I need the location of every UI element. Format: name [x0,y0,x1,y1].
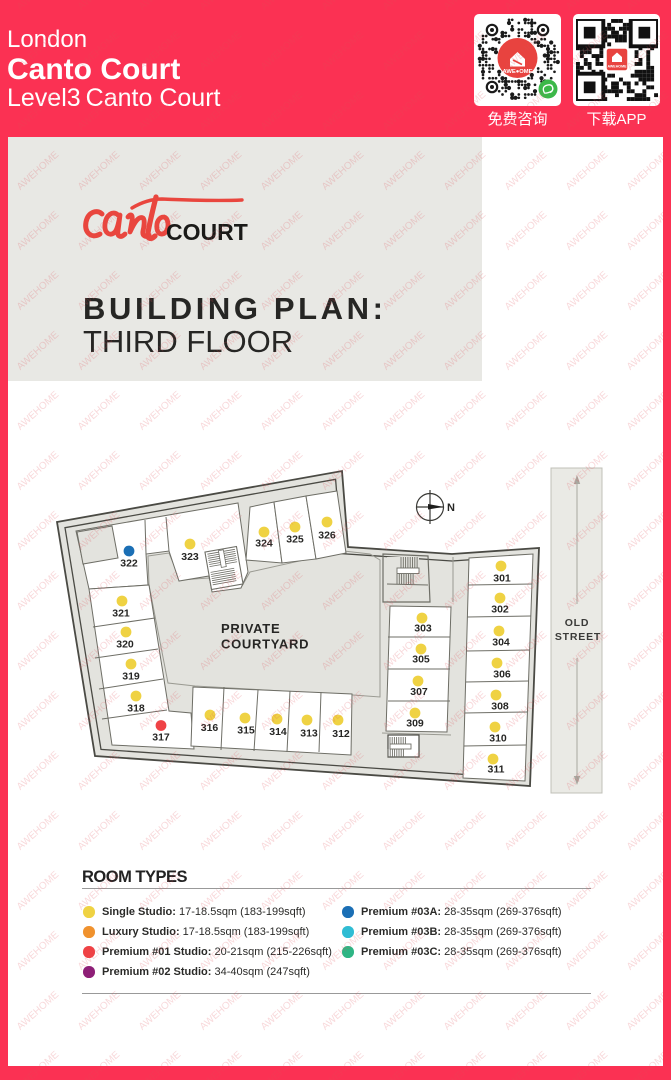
svg-text:318: 318 [127,703,145,715]
svg-text:301: 301 [493,573,511,585]
svg-text:306: 306 [493,669,511,681]
svg-text:316: 316 [201,722,219,734]
svg-text:317: 317 [152,732,170,744]
svg-text:PRIVATE: PRIVATE [221,621,280,636]
svg-text:307: 307 [410,686,428,698]
svg-text:313: 313 [300,728,318,740]
svg-text:326: 326 [318,530,336,542]
svg-text:321: 321 [112,608,130,620]
svg-text:312: 312 [332,728,350,740]
svg-text:STREET: STREET [555,631,601,643]
svg-text:308: 308 [491,701,509,713]
svg-text:323: 323 [181,551,199,563]
svg-text:322: 322 [120,558,138,570]
svg-text:304: 304 [492,637,510,649]
svg-text:314: 314 [269,726,287,738]
svg-text:319: 319 [122,671,140,683]
svg-text:311: 311 [488,764,505,776]
svg-text:305: 305 [412,654,430,666]
svg-text:302: 302 [491,604,509,616]
svg-text:320: 320 [116,639,134,651]
svg-text:303: 303 [414,623,432,635]
svg-text:315: 315 [237,725,255,737]
svg-text:OLD: OLD [565,617,590,629]
svg-text:309: 309 [406,718,424,730]
svg-text:N: N [447,502,455,514]
svg-text:COURTYARD: COURTYARD [221,637,309,652]
svg-text:325: 325 [286,534,304,546]
svg-text:310: 310 [489,733,507,745]
svg-text:324: 324 [255,538,273,550]
